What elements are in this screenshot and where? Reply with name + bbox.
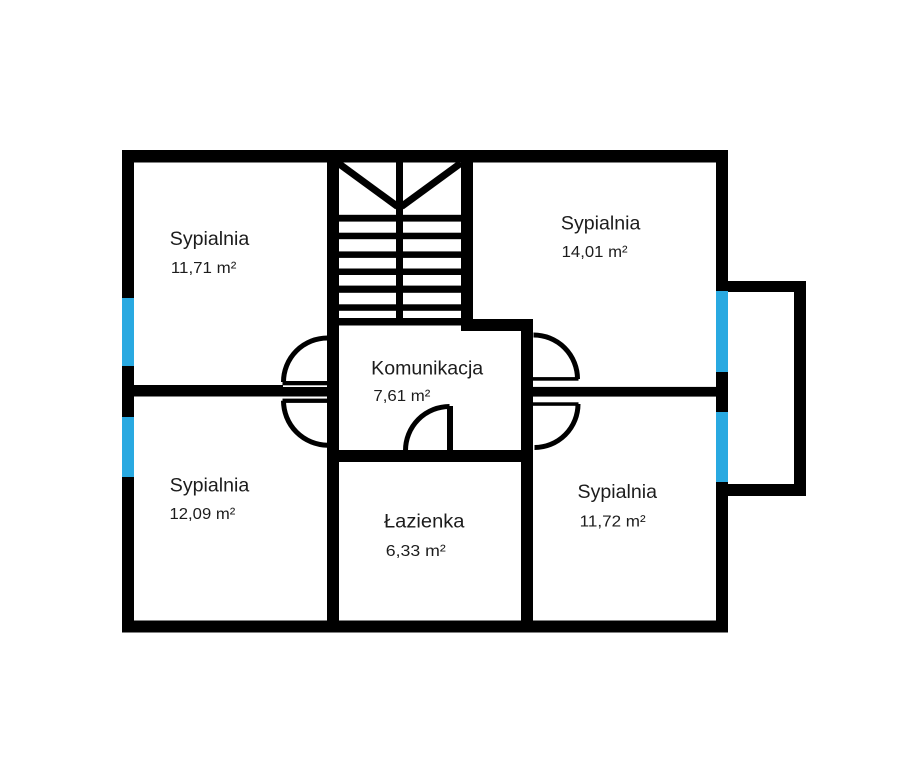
svg-text:12,09 m²: 12,09 m² [170,506,237,523]
svg-text:Sypialnia: Sypialnia [561,213,641,235]
svg-text:11,72 m²: 11,72 m² [580,513,647,530]
svg-text:14,01 m²: 14,01 m² [562,244,629,261]
svg-text:7,61 m²: 7,61 m² [373,388,431,405]
svg-text:11,71 m²: 11,71 m² [171,260,237,277]
svg-text:Sypialnia: Sypialnia [170,474,250,496]
svg-text:Łazienka: Łazienka [384,511,465,533]
svg-text:6,33 m²: 6,33 m² [386,543,447,560]
svg-text:Sypialnia: Sypialnia [170,228,250,250]
svg-text:Sypialnia: Sypialnia [578,481,658,503]
svg-text:Komunikacja: Komunikacja [371,357,483,379]
